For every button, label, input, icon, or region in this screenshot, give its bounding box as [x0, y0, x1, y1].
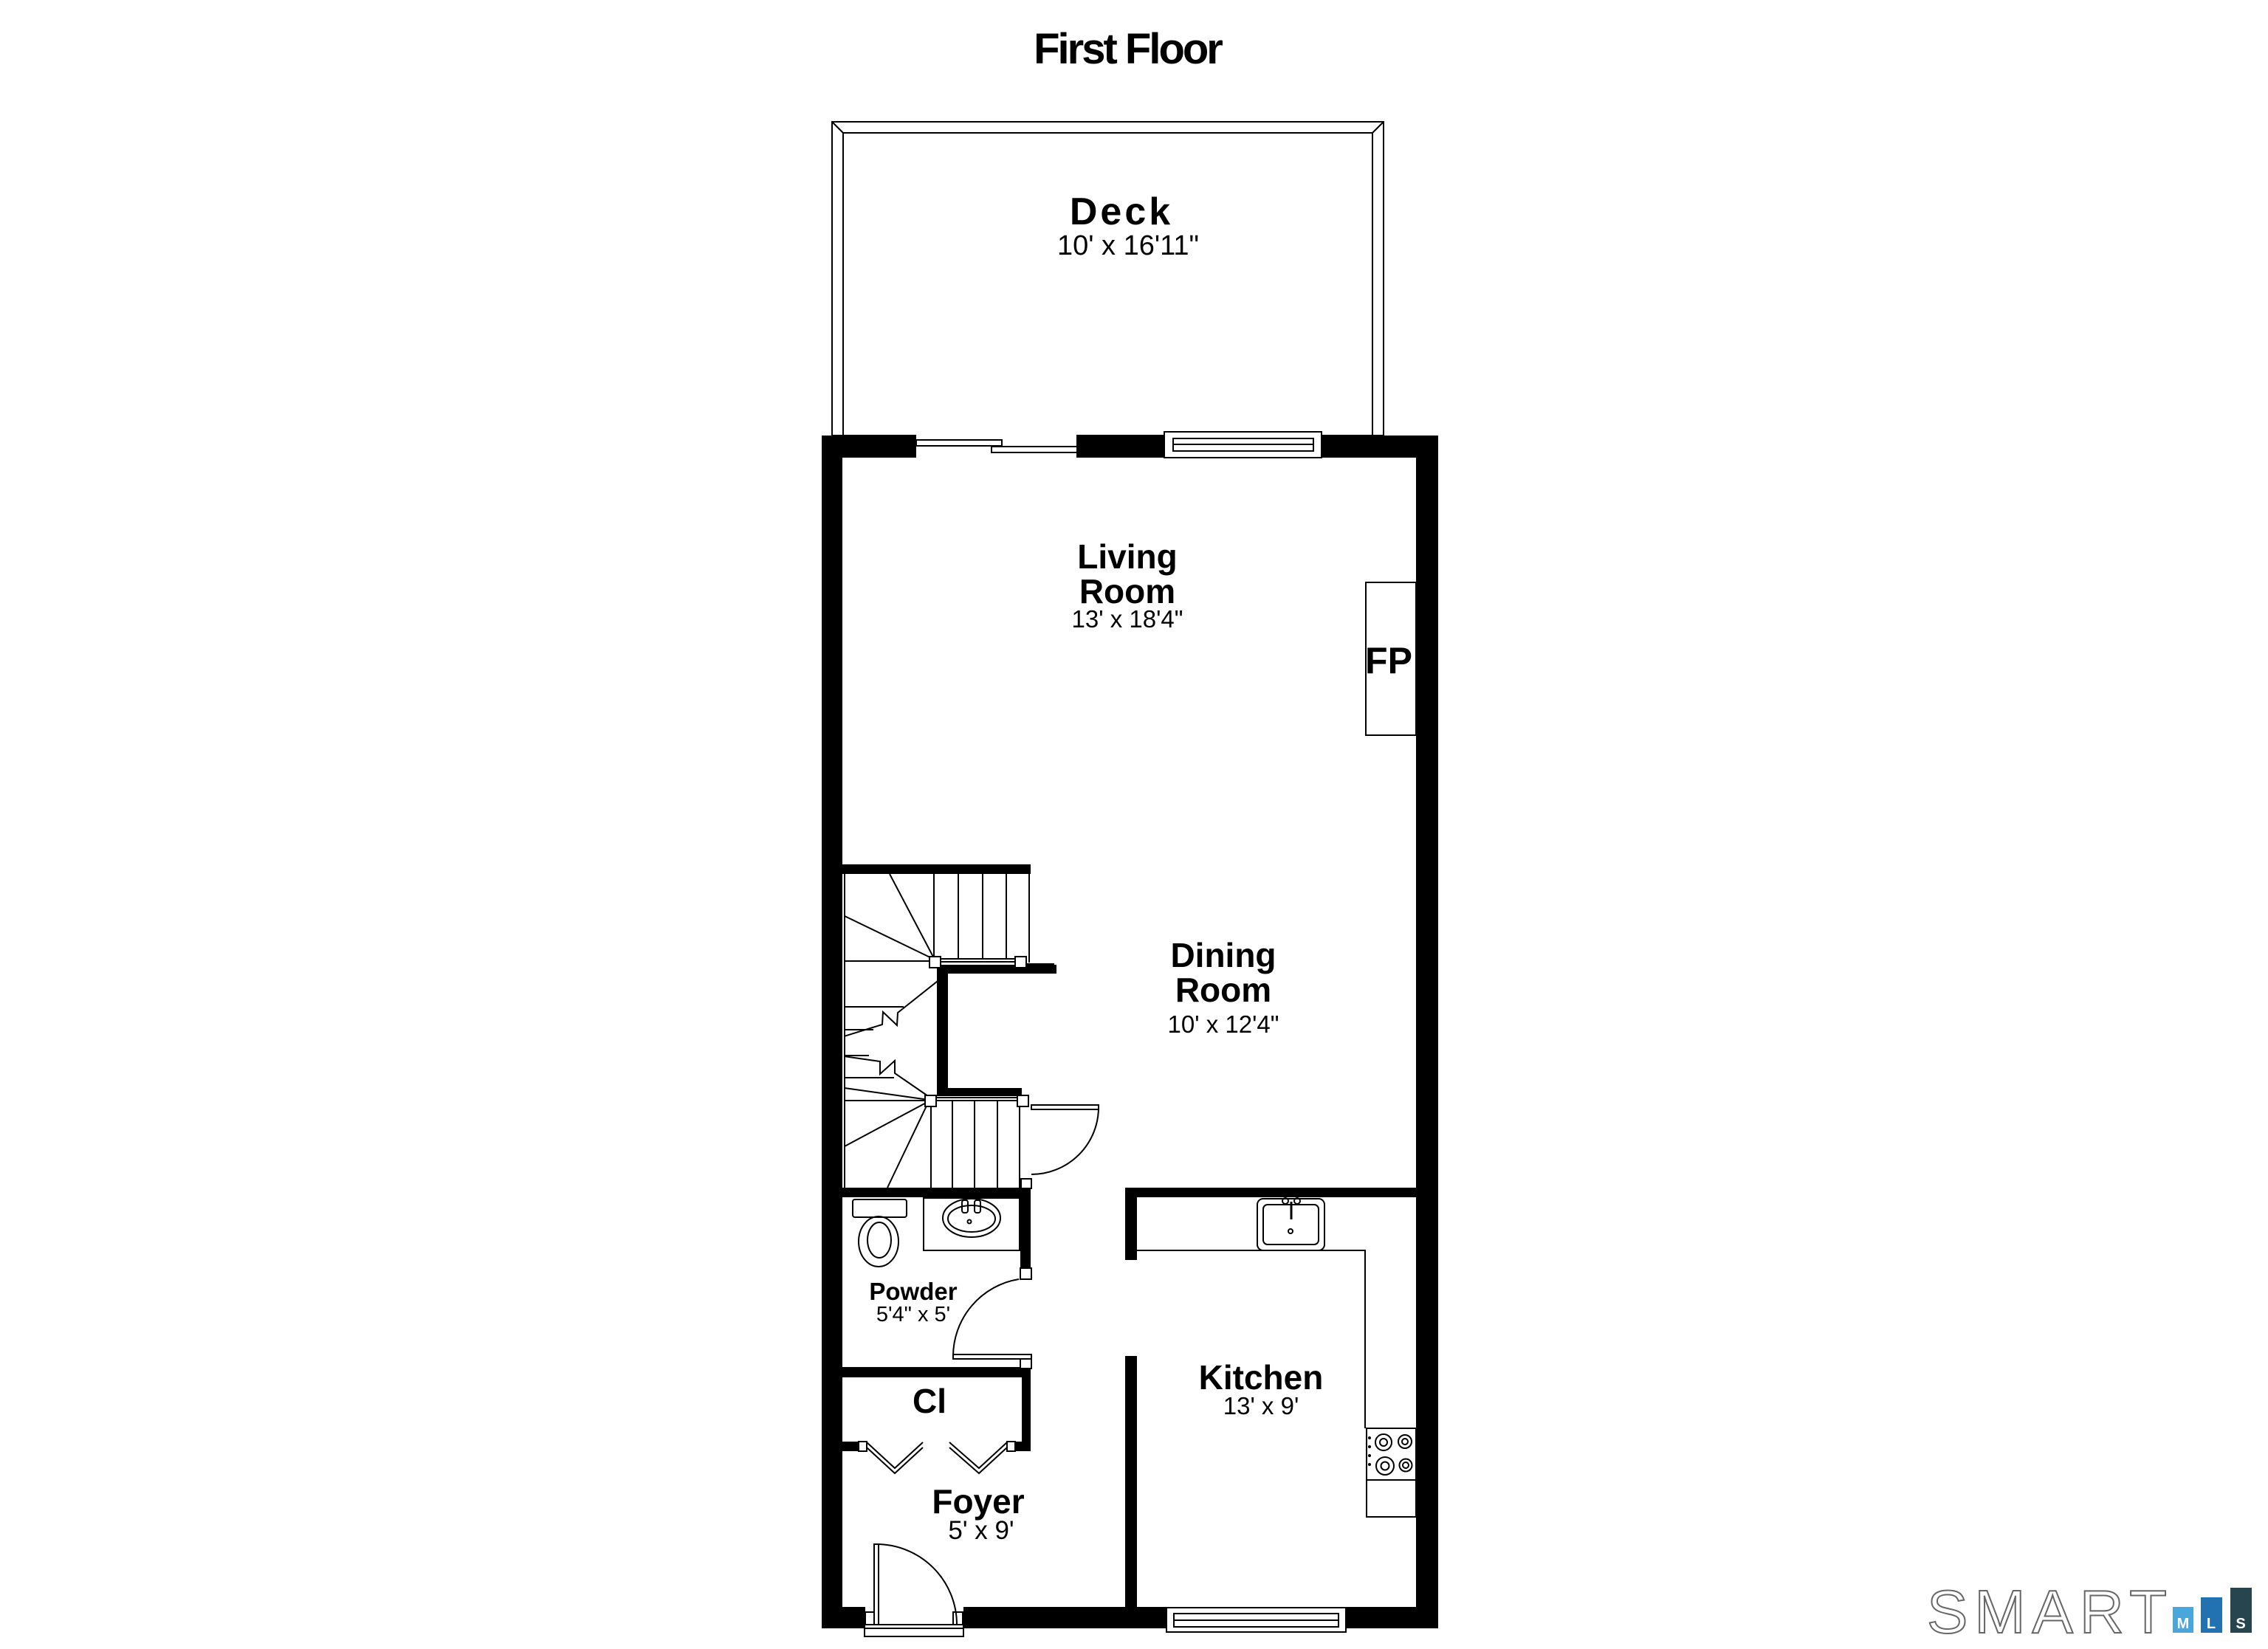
svg-text:5' x 9': 5' x 9': [948, 1516, 1014, 1545]
svg-text:Cl: Cl: [913, 1382, 946, 1420]
svg-text:10' x 16'11": 10' x 16'11": [1057, 230, 1199, 261]
svg-text:13' x 18'4": 13' x 18'4": [1072, 605, 1183, 633]
svg-text:Powder: Powder: [869, 1278, 957, 1305]
svg-text:Foyer: Foyer: [932, 1482, 1024, 1521]
svg-text:Deck: Deck: [1070, 190, 1173, 233]
svg-text:L: L: [2207, 1616, 2216, 1632]
svg-text:FP: FP: [1365, 640, 1412, 681]
svg-text:10' x 12'4": 10' x 12'4": [1168, 1011, 1279, 1038]
svg-text:First Floor: First Floor: [1034, 25, 1223, 73]
svg-text:Room: Room: [1175, 971, 1271, 1009]
svg-text:Living: Living: [1077, 537, 1177, 576]
svg-text:Kitchen: Kitchen: [1199, 1358, 1324, 1397]
svg-text:SMART: SMART: [1927, 1577, 2173, 1646]
svg-text:S: S: [2236, 1616, 2245, 1632]
svg-text:Dining: Dining: [1170, 936, 1276, 974]
svg-text:5'4" x 5': 5'4" x 5': [876, 1303, 950, 1326]
svg-text:13' x 9': 13' x 9': [1223, 1392, 1299, 1419]
svg-text:M: M: [2177, 1616, 2190, 1632]
